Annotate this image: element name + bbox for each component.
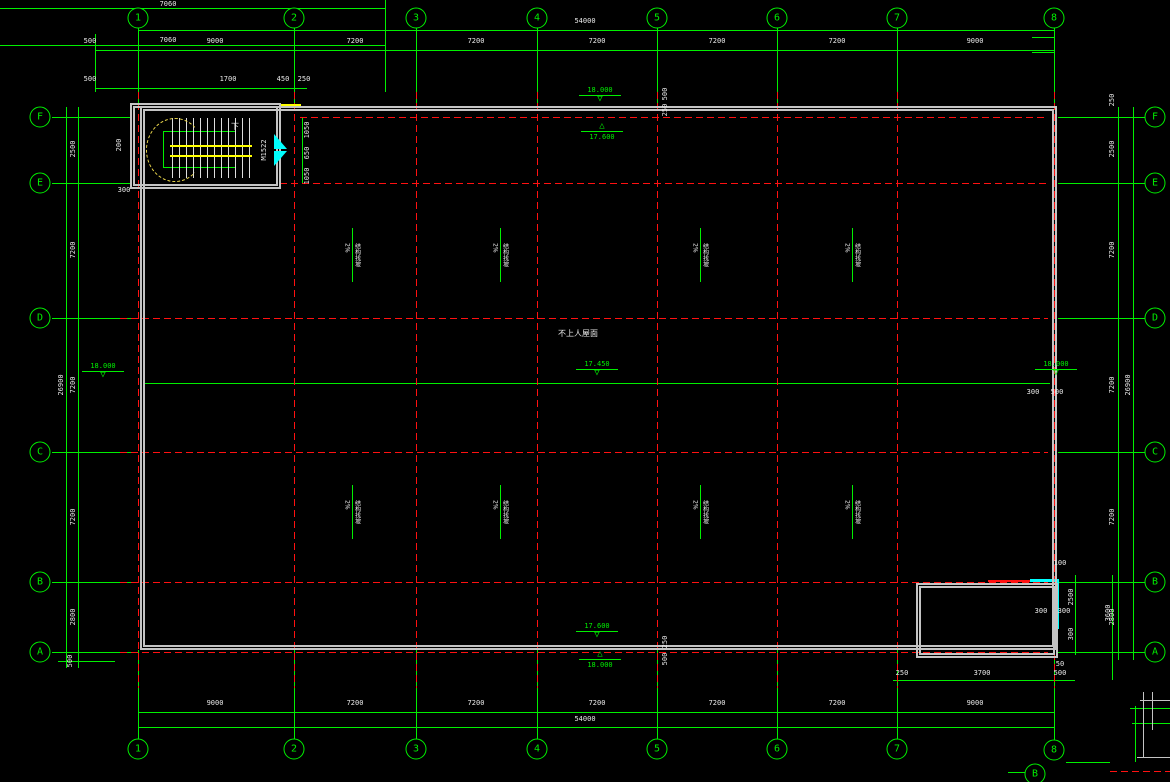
elevation-marker: 18.000 △: [579, 652, 621, 669]
slope-percent: 2%: [692, 500, 699, 524]
drawing-line: [0, 45, 385, 46]
wall-outline: [130, 103, 281, 189]
drawing-line: [1133, 107, 1134, 660]
grid-bubble: F: [1145, 107, 1166, 128]
grid-bubble: 4: [527, 8, 548, 29]
drawing-line: [385, 0, 386, 92]
wall-outline: [916, 583, 1058, 658]
grid-bubble: 3: [406, 739, 427, 760]
dim-text: 不上人屋面: [558, 330, 598, 338]
grid-bubble: 6: [767, 739, 788, 760]
dim-text: 7200: [347, 37, 364, 45]
elevation-triangle-icon: ▽: [1053, 369, 1058, 377]
dim-text: 1050: [303, 168, 311, 185]
dim-text: 7200: [69, 242, 77, 259]
elevation-marker: 18.000 ▽: [82, 362, 124, 379]
dim-text: 500: [84, 75, 97, 83]
dim-text: 26900: [1124, 374, 1132, 395]
grid-bubble: B: [1145, 572, 1166, 593]
dim-text: 500: [661, 653, 669, 666]
elevation-marker: 17.600 ▽: [576, 622, 618, 639]
dim-text: 7200: [69, 377, 77, 394]
drawing-line: [1137, 757, 1170, 758]
grid-bubble: 7: [887, 739, 908, 760]
grid-bubble: C: [30, 442, 51, 463]
drawing-line: [0, 8, 385, 9]
grid-bubble: C: [1145, 442, 1166, 463]
elevation-marker: 17.600 △: [581, 124, 623, 141]
slope-percent: 2%: [344, 243, 351, 267]
dim-text: 650: [303, 147, 311, 160]
drawing-line: [1140, 700, 1170, 701]
slope-label: 结构找坡: [854, 500, 861, 524]
slope-label: 结构找坡: [702, 500, 709, 524]
slope-percent: 2%: [692, 243, 699, 267]
dim-text: 300: [118, 186, 131, 194]
dim-text: 7200: [1108, 509, 1116, 526]
grid-bubble: E: [1145, 173, 1166, 194]
elevation-triangle-icon: △: [599, 122, 604, 130]
grid-bubble: 1: [128, 739, 149, 760]
dim-text: 500: [1054, 669, 1067, 677]
slope-annotation: 2% 结构找坡: [692, 500, 709, 524]
dim-text: 7200: [1108, 242, 1116, 259]
drawing-line: [1032, 37, 1054, 38]
elevation-triangle-icon: ▽: [100, 371, 105, 379]
drawing-line: [66, 107, 67, 668]
grid-bubble: A: [30, 642, 51, 663]
elevation-value: 18.000: [90, 362, 115, 370]
cad-drawing-canvas[interactable]: 9000720072007200720072009000540005005001…: [0, 0, 1170, 782]
elevation-marker: 18.000 ▽: [579, 86, 621, 103]
dim-text: 3700: [974, 669, 991, 677]
dim-text: 7200: [709, 699, 726, 707]
dim-text: 9000: [207, 699, 224, 707]
slope-percent: 2%: [344, 500, 351, 524]
drawing-line: [1075, 575, 1076, 655]
drawing-line: [95, 50, 1054, 51]
dim-text: 54000: [574, 715, 595, 723]
dim-text: 2500: [1108, 141, 1116, 158]
dim-text: 9000: [967, 37, 984, 45]
elevation-triangle-icon: ▽: [594, 631, 599, 639]
elevation-line: [579, 659, 621, 660]
door-leaf-icon: [274, 134, 287, 149]
dim-text: 450: [277, 75, 290, 83]
grid-bubble: D: [1145, 308, 1166, 329]
dim-text: 500: [1051, 388, 1064, 396]
dim-text: 7060: [160, 36, 177, 44]
drawing-line: [1066, 762, 1110, 763]
dim-text: 250: [896, 669, 909, 677]
grid-bubble: A: [1145, 642, 1166, 663]
dim-text: 3600: [1104, 605, 1112, 622]
drawing-line: [78, 107, 79, 668]
grid-bubble: 2: [284, 739, 305, 760]
dim-text: 7200: [69, 509, 77, 526]
drawing-line: [138, 727, 1054, 728]
elevation-value: 17.600: [589, 133, 614, 141]
drawing-line: [1143, 692, 1144, 758]
dim-text: 7200: [468, 699, 485, 707]
dim-text: 7060: [160, 0, 177, 8]
door-leaf-icon: [274, 151, 287, 166]
dim-text: 50: [1056, 660, 1064, 668]
dim-text: 200: [115, 139, 123, 152]
dim-text: 1700: [220, 75, 237, 83]
grid-bubble: D: [30, 308, 51, 329]
elevation-triangle-icon: ▽: [597, 95, 602, 103]
drawing-line: [1112, 575, 1113, 680]
dim-text: 7200: [1108, 377, 1116, 394]
dim-text: 7200: [347, 699, 364, 707]
elevation-line: [581, 131, 623, 132]
drawing-line: [138, 712, 1054, 713]
dim-text: 26900: [57, 374, 65, 395]
grid-bubble: 8: [1044, 8, 1065, 29]
dim-text: 7200: [829, 699, 846, 707]
dim-text: 7200: [589, 699, 606, 707]
elevation-value: 18.000: [587, 86, 612, 94]
elevation-marker: 18.000 ▽: [1035, 360, 1077, 377]
dim-text: 250: [661, 104, 669, 117]
grid-bubble: 3: [406, 8, 427, 29]
drawing-line: [52, 117, 132, 118]
dim-text: 500: [661, 88, 669, 101]
grid-bubble: B: [30, 572, 51, 593]
slope-label: 结构找坡: [354, 243, 361, 267]
drawing-line: [95, 88, 307, 89]
grid-bubble: 2: [284, 8, 305, 29]
dim-text: 下: [231, 123, 239, 131]
dim-text: 500: [66, 655, 74, 668]
dim-text: 54000: [574, 17, 595, 25]
slope-annotation: 2% 结构找坡: [344, 500, 361, 524]
elevation-triangle-icon: △: [597, 650, 602, 658]
grid-bubble: 8: [1044, 740, 1065, 761]
slope-annotation: 2% 结构找坡: [344, 243, 361, 267]
drawing-line: [1152, 692, 1153, 730]
dim-text: 300: [1067, 628, 1075, 641]
drawing-line: [1130, 708, 1170, 709]
grid-bubble: 7: [887, 8, 908, 29]
grid-bubble: B: [1025, 764, 1046, 782]
drawing-line: [1110, 771, 1170, 772]
drawing-line: [893, 680, 1075, 681]
drawing-line: [1132, 723, 1170, 724]
slope-percent: 2%: [844, 243, 851, 267]
slope-percent: 2%: [492, 243, 499, 267]
dim-text: 500: [84, 37, 97, 45]
dim-text: 300: [1027, 388, 1040, 396]
dim-text: 9000: [207, 37, 224, 45]
elevation-value: 17.600: [584, 622, 609, 630]
slope-label: 结构找坡: [354, 500, 361, 524]
elevation-value: 18.000: [1043, 360, 1068, 368]
drawing-line: [138, 30, 1054, 31]
dim-text: 250: [661, 636, 669, 649]
dim-text: 250: [1108, 94, 1116, 107]
dim-text: 300: [1035, 607, 1048, 615]
dim-text: 300: [1058, 607, 1071, 615]
grid-bubble: 6: [767, 8, 788, 29]
grid-bubble: 1: [128, 8, 149, 29]
grid-bubble: E: [30, 173, 51, 194]
elevation-triangle-icon: ▽: [594, 369, 599, 377]
dim-text: 7200: [589, 37, 606, 45]
dim-text: 1050: [303, 122, 311, 139]
slope-annotation: 2% 结构找坡: [844, 243, 861, 267]
grid-bubble: F: [30, 107, 51, 128]
drawing-line: [1135, 706, 1136, 762]
slope-label: 结构找坡: [702, 243, 709, 267]
dim-text: 2500: [1067, 589, 1075, 606]
drawing-line: [52, 183, 132, 184]
dim-text: 250: [298, 75, 311, 83]
slope-annotation: 2% 结构找坡: [492, 500, 509, 524]
drawing-line: [1118, 107, 1119, 660]
slope-label: 结构找坡: [502, 500, 509, 524]
slope-label: 结构找坡: [502, 243, 509, 267]
dim-text: 100: [1054, 559, 1067, 567]
grid-bubble: 4: [527, 739, 548, 760]
slope-annotation: 2% 结构找坡: [844, 500, 861, 524]
dim-text: 7200: [468, 37, 485, 45]
slope-annotation: 2% 结构找坡: [692, 243, 709, 267]
dim-text: M1522: [260, 139, 268, 160]
elevation-value: 18.000: [587, 661, 612, 669]
slope-annotation: 2% 结构找坡: [492, 243, 509, 267]
dim-text: 7200: [709, 37, 726, 45]
grid-bubble: 5: [647, 8, 668, 29]
grid-bubble: 5: [647, 739, 668, 760]
dim-text: 7200: [829, 37, 846, 45]
dim-text: 9000: [967, 699, 984, 707]
dim-text: 2500: [69, 141, 77, 158]
drawing-line: [1032, 52, 1054, 53]
elevation-marker: 17.450 ▽: [576, 360, 618, 377]
slope-percent: 2%: [844, 500, 851, 524]
slope-percent: 2%: [492, 500, 499, 524]
elevation-value: 17.450: [584, 360, 609, 368]
slope-label: 结构找坡: [854, 243, 861, 267]
dim-text: 2800: [69, 609, 77, 626]
